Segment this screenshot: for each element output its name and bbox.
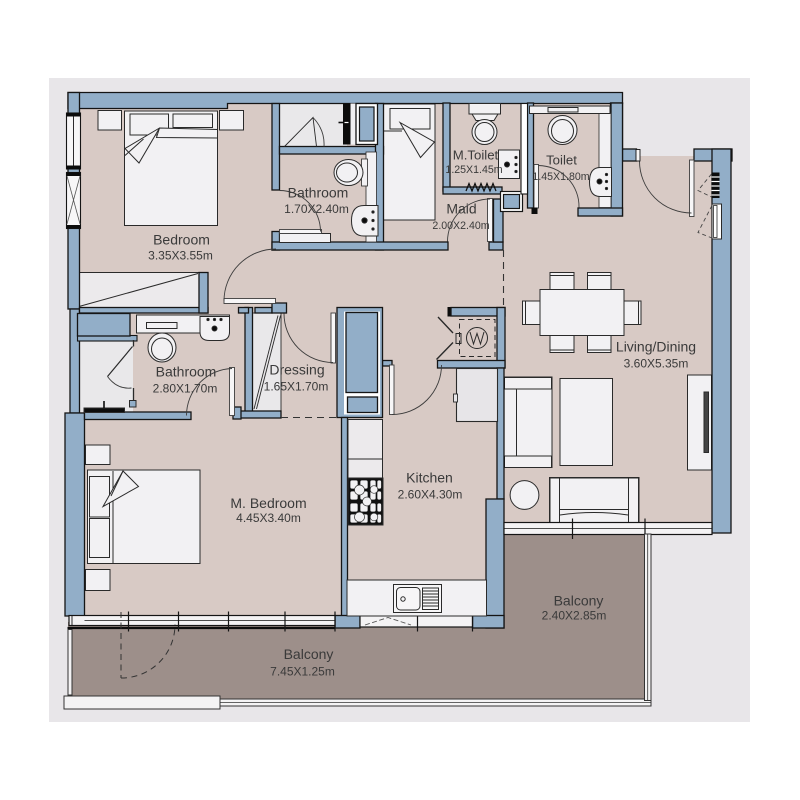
svg-text:2.00X2.40m: 2.00X2.40m [432, 220, 489, 232]
svg-text:2.80X1.70m: 2.80X1.70m [153, 382, 218, 396]
svg-text:Balcony: Balcony [284, 646, 334, 662]
svg-text:Toilet: Toilet [546, 153, 577, 168]
svg-text:1.65X1.70m: 1.65X1.70m [264, 380, 329, 394]
svg-text:Maid: Maid [446, 201, 476, 217]
svg-text:1.45X1.80m: 1.45X1.80m [532, 171, 589, 183]
svg-text:M. Bedroom: M. Bedroom [230, 495, 306, 511]
svg-text:Bedroom: Bedroom [153, 232, 210, 248]
svg-text:Kitchen: Kitchen [406, 470, 453, 486]
svg-text:4.45X3.40m: 4.45X3.40m [236, 511, 301, 525]
svg-text:M.Toilet: M.Toilet [453, 148, 499, 163]
svg-text:7.45X1.25m: 7.45X1.25m [270, 665, 335, 679]
svg-text:1.70X2.40m: 1.70X2.40m [284, 202, 349, 216]
svg-text:Balcony: Balcony [554, 593, 604, 609]
svg-text:Bathroom: Bathroom [288, 185, 349, 201]
svg-text:3.60X5.35m: 3.60X5.35m [624, 357, 689, 371]
svg-text:Bathroom: Bathroom [156, 364, 217, 380]
svg-text:2.40X2.85m: 2.40X2.85m [542, 609, 607, 623]
svg-text:3.35X3.55m: 3.35X3.55m [148, 249, 213, 263]
svg-text:1.25X1.45m: 1.25X1.45m [445, 164, 502, 176]
svg-text:Dressing: Dressing [269, 362, 324, 378]
svg-text:Living/Dining: Living/Dining [616, 339, 696, 355]
svg-text:2.60X4.30m: 2.60X4.30m [398, 488, 463, 502]
